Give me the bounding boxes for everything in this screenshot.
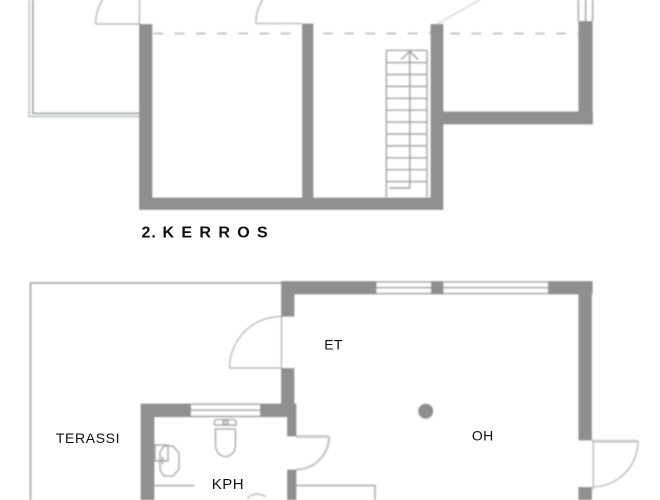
svg-text:KPH: KPH (212, 476, 244, 493)
svg-text:2.: 2. (142, 225, 157, 242)
svg-text:KERROS: KERROS (163, 225, 276, 242)
svg-text:ET: ET (324, 337, 343, 353)
svg-text:OH: OH (472, 427, 494, 443)
svg-text:TERASSI: TERASSI (56, 430, 120, 446)
